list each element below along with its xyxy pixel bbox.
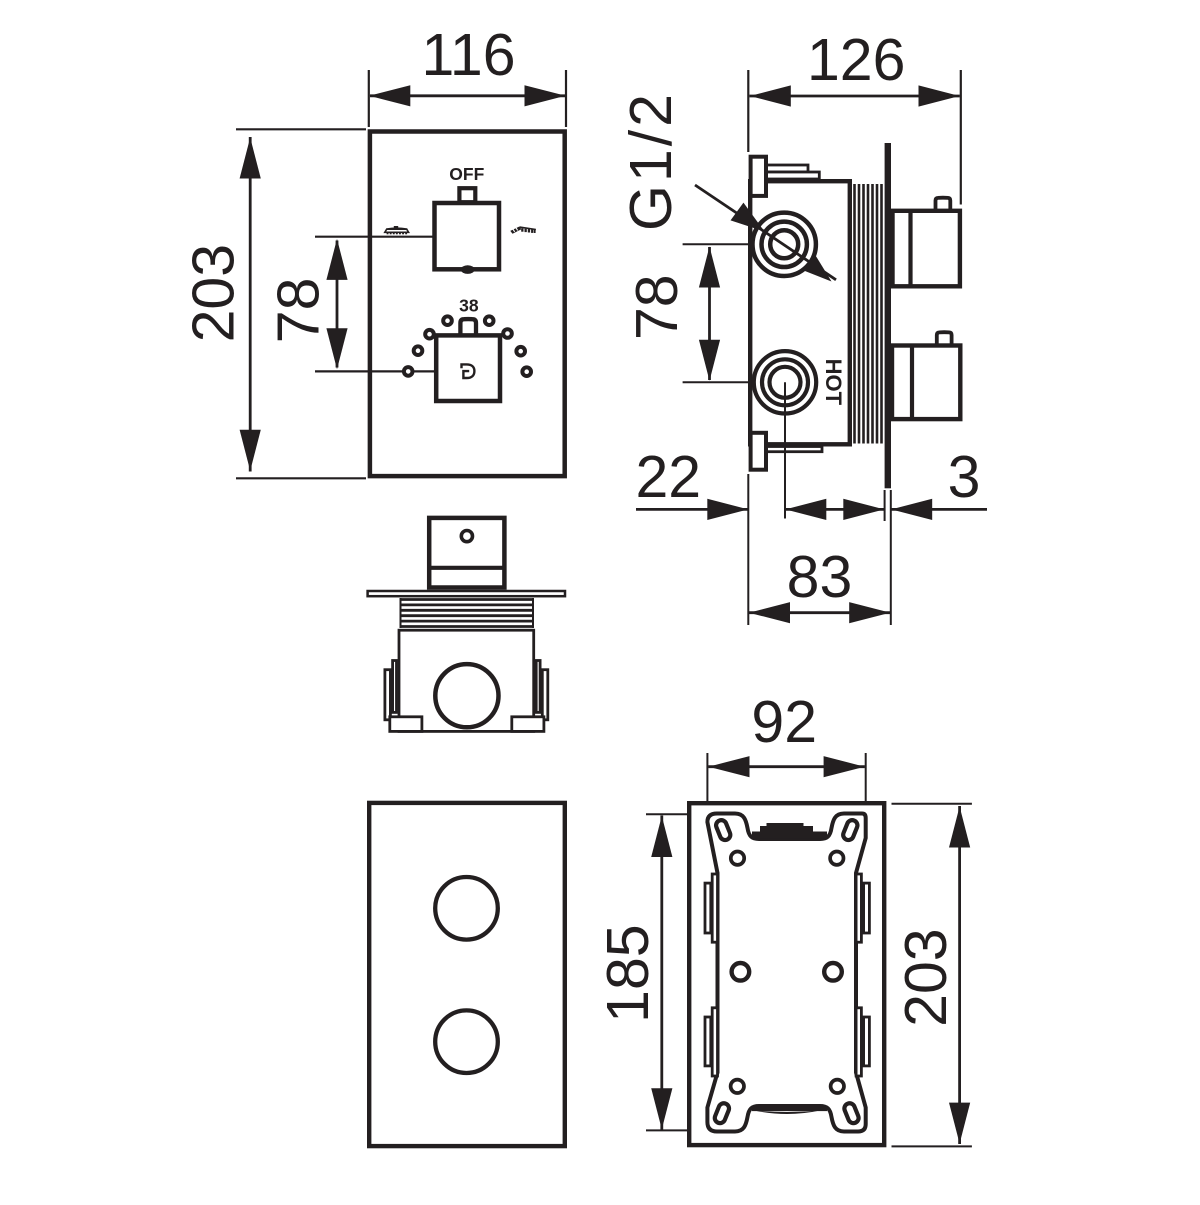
svg-text:22: 22 xyxy=(635,444,701,510)
svg-text:OFF: OFF xyxy=(449,164,484,184)
svg-text:HOT: HOT xyxy=(821,359,846,406)
svg-text:78: 78 xyxy=(624,274,690,340)
svg-text:185: 185 xyxy=(595,924,661,1022)
svg-text:203: 203 xyxy=(181,244,247,342)
svg-text:G1/2: G1/2 xyxy=(618,91,684,231)
svg-text:3: 3 xyxy=(948,444,981,510)
svg-text:83: 83 xyxy=(787,544,853,610)
svg-text:38: 38 xyxy=(459,296,479,316)
svg-text:78: 78 xyxy=(266,278,332,344)
svg-text:116: 116 xyxy=(421,22,515,88)
svg-text:126: 126 xyxy=(807,27,905,93)
svg-text:203: 203 xyxy=(893,928,959,1026)
svg-text:92: 92 xyxy=(751,689,817,755)
